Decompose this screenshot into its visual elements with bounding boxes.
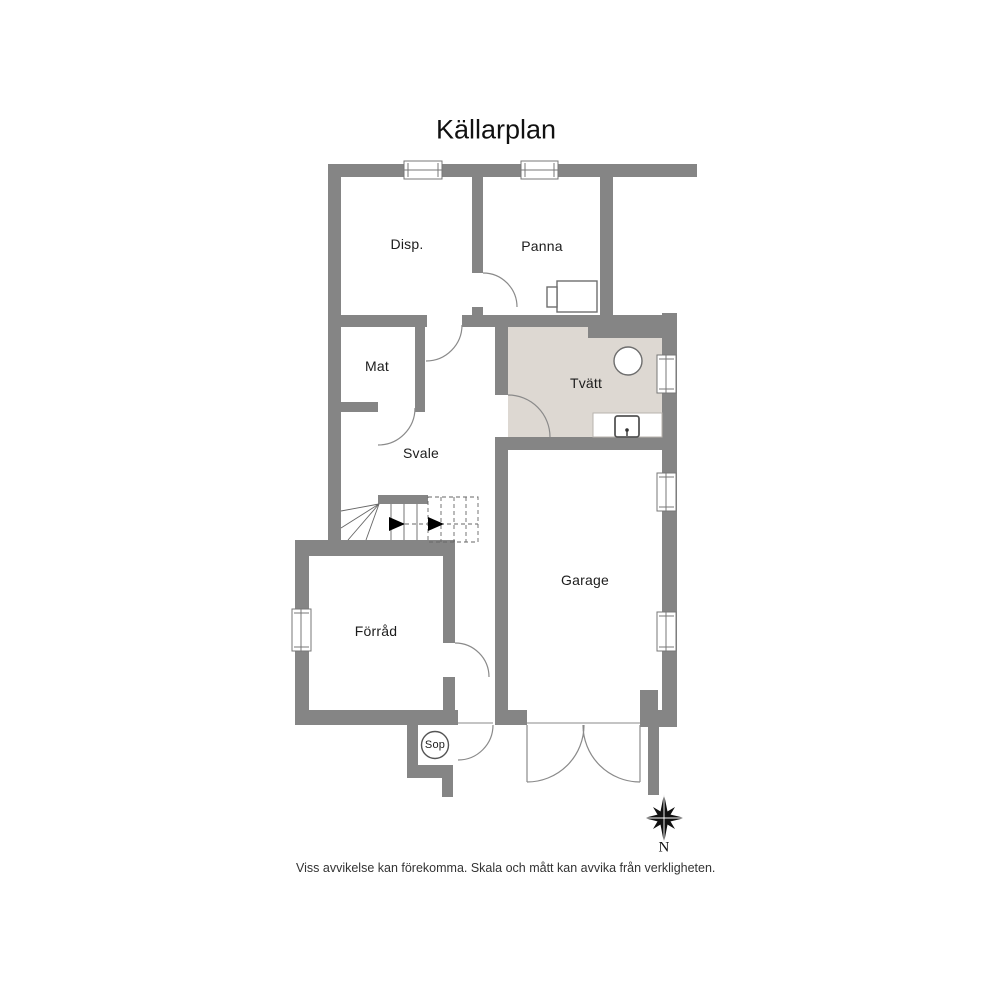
wall-panna-right bbox=[600, 174, 613, 315]
room-label-mat: Mat bbox=[365, 358, 389, 374]
wall-garage-bottom-right bbox=[640, 710, 677, 727]
wall-tvatt-left-upper bbox=[495, 315, 508, 395]
window-right-tvatt bbox=[657, 355, 676, 393]
wall-tvatt-top-notch bbox=[588, 327, 663, 338]
room-label-disp: Disp. bbox=[391, 236, 424, 252]
door-arc-svale bbox=[426, 325, 462, 361]
window-right-garage-lower bbox=[657, 612, 676, 651]
boiler-side-unit bbox=[547, 287, 557, 307]
wall-mat-bottom bbox=[328, 402, 378, 412]
wall-garage-bottom-left bbox=[495, 710, 527, 725]
floorplan-drawing bbox=[0, 0, 992, 992]
wall-garage-right-jamb bbox=[640, 690, 658, 712]
room-label-svale: Svale bbox=[403, 445, 439, 461]
wall-bottom-left bbox=[295, 710, 458, 725]
boiler bbox=[557, 281, 597, 312]
disclaimer-text: Viss avvikelse kan förekomma. Skala och … bbox=[296, 861, 715, 875]
room-label-panna: Panna bbox=[521, 238, 562, 254]
wall-left-upper bbox=[328, 164, 341, 545]
wall-top bbox=[328, 164, 697, 177]
page-title: Källarplan bbox=[436, 115, 556, 146]
door-arc-mat bbox=[378, 408, 415, 445]
wall-sop-stub bbox=[442, 765, 453, 797]
window-top-panna bbox=[521, 161, 558, 179]
wall-panna-left-upper bbox=[472, 174, 483, 273]
window-left-forrad bbox=[292, 609, 311, 651]
walls bbox=[295, 164, 697, 797]
stair-landing bbox=[378, 495, 428, 504]
wall-forrad-right-upper bbox=[443, 540, 455, 643]
laundry-basin bbox=[614, 347, 642, 375]
sink bbox=[615, 416, 639, 437]
door-arc-panna bbox=[483, 273, 517, 307]
stair-direction-arrow-2 bbox=[428, 517, 444, 531]
door-arc-exit bbox=[458, 725, 493, 760]
room-label-forrad: Förråd bbox=[355, 623, 397, 639]
room-label-tvatt: Tvätt bbox=[570, 375, 602, 391]
wall-mid-horizontal-left bbox=[328, 315, 427, 327]
compass-rose bbox=[644, 794, 685, 843]
wall-mid-vertical-lower bbox=[495, 437, 508, 725]
wall-mid-horizontal-right bbox=[462, 315, 675, 327]
garage-double-door bbox=[527, 725, 640, 782]
room-label-garage: Garage bbox=[561, 572, 609, 588]
wall-mat-right bbox=[415, 315, 425, 412]
window-right-garage-upper bbox=[657, 473, 676, 511]
window-top-disp bbox=[404, 161, 442, 179]
floorplan-page: Källarplan Disp. Panna Mat Tvätt Svale F… bbox=[0, 0, 992, 992]
door-arc-forrad bbox=[455, 643, 489, 677]
wall-tvatt-bottom bbox=[495, 437, 663, 450]
stair-direction-arrow-1 bbox=[389, 517, 405, 531]
sop-label: Sop bbox=[425, 739, 445, 751]
compass-n-label: N bbox=[658, 840, 669, 857]
wall-right-exterior-stub bbox=[648, 725, 659, 795]
